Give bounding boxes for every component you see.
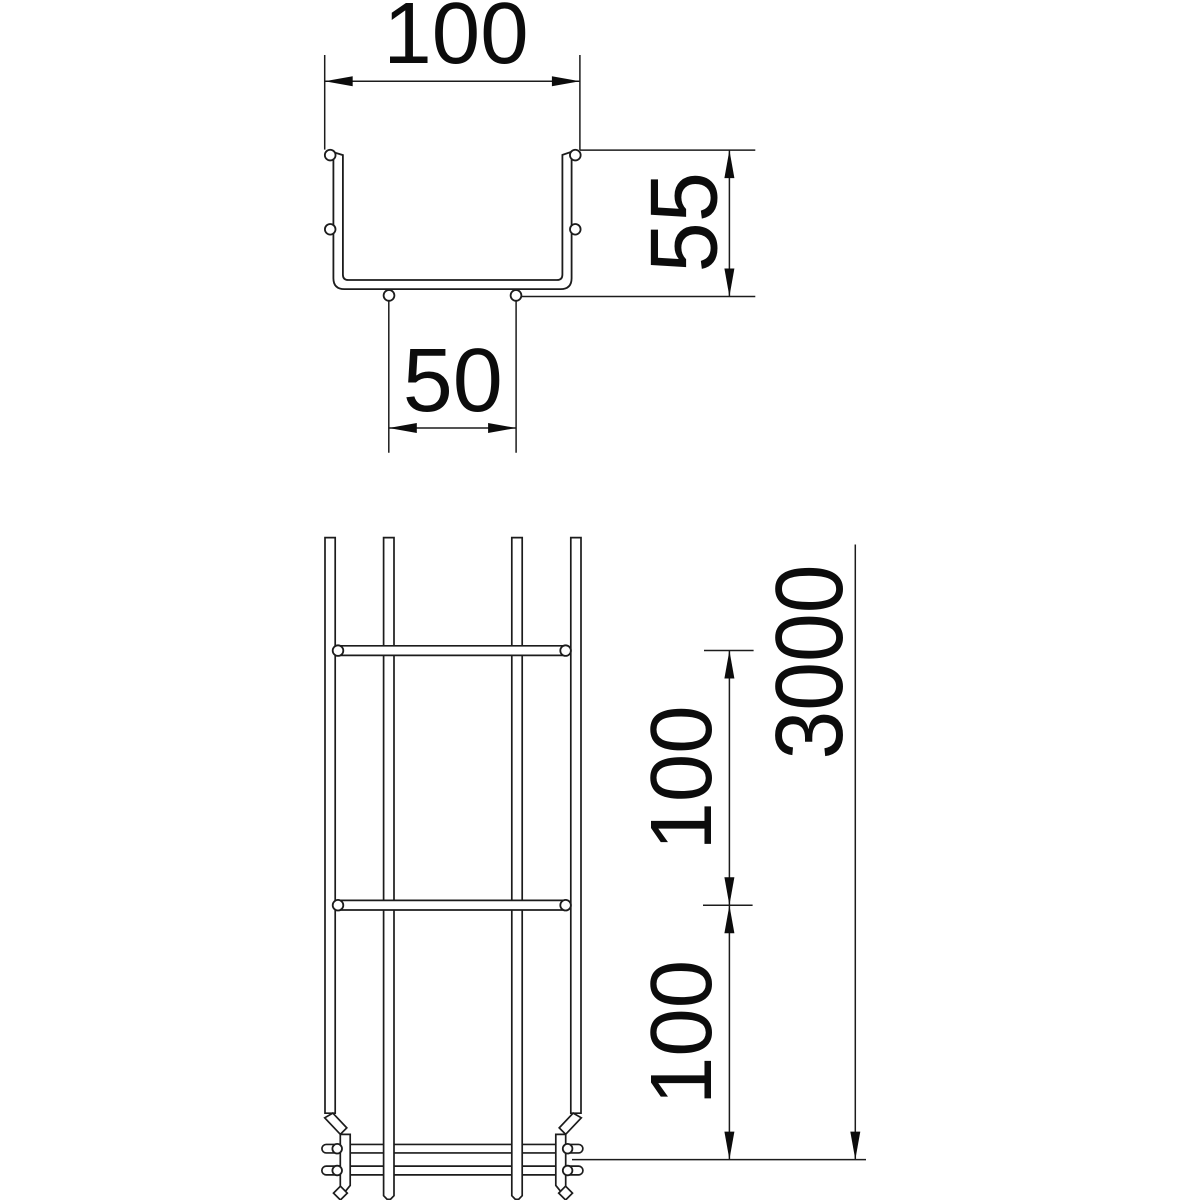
svg-text:100: 100 bbox=[633, 705, 730, 850]
svg-text:100: 100 bbox=[633, 960, 730, 1105]
svg-text:55: 55 bbox=[631, 172, 738, 273]
svg-text:50: 50 bbox=[403, 331, 503, 431]
svg-text:100: 100 bbox=[383, 0, 528, 82]
svg-text:3000: 3000 bbox=[756, 565, 863, 760]
